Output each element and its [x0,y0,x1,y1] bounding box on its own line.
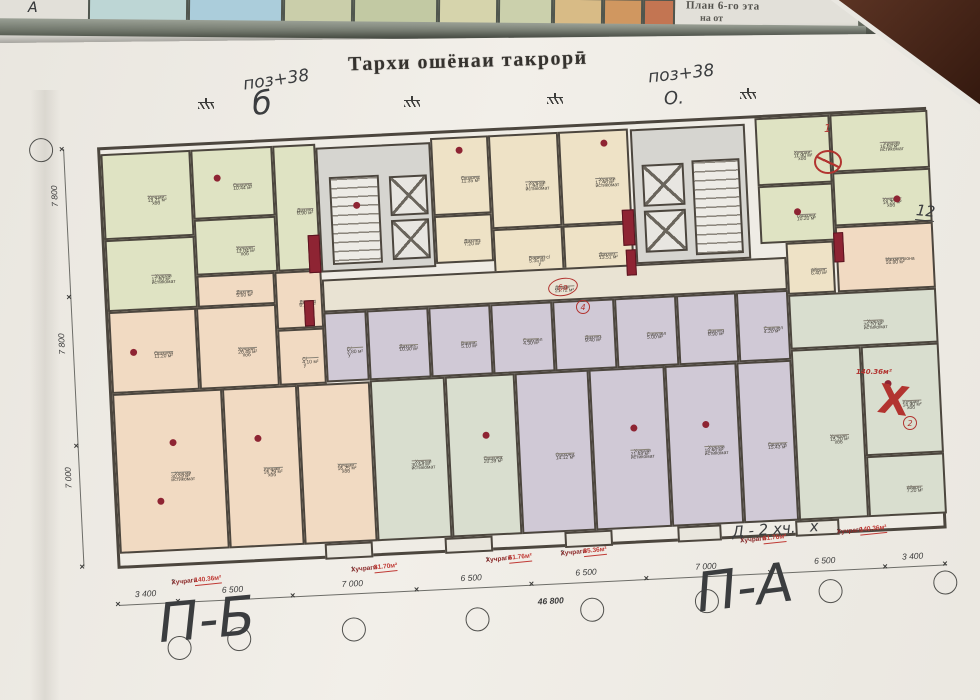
elevator-shaft [391,218,431,260]
grid-bubble [29,138,54,163]
elevator-shaft [389,174,429,216]
benchmark-icon [740,88,756,98]
room: Айвон7.20 м² [866,452,947,517]
room: Санузел4.30 м² [490,301,555,374]
room: Хучраи хоб13.21 м² [100,150,194,240]
room-area: 17.80 м² [151,274,170,283]
stair-core [630,124,751,264]
room-area: 12.04 м² [236,246,255,255]
dimension-value: 6 500 [814,555,836,566]
room-area: 10.20 м² [797,213,816,222]
balcony [445,536,494,554]
room: Дахлез8.70 м² [274,270,324,330]
room-area: 4.30 м² [523,338,540,347]
room-area: 30.64 м² [411,459,430,468]
room: Дахлез8.90 м² [676,292,739,365]
dimension-value: 7 800 [49,185,60,207]
room-area: 11.20 м² [154,351,173,360]
room: Ванна5.10 м² [428,304,493,377]
room-area: 5.35 м² [529,256,546,265]
room-area: 6.40 м² [811,268,828,277]
building-outline: Хучраи хоб13.21 м²Ошхона10.44 м²Дахлез8.… [97,107,947,569]
room: Хучраи хоб16.25 м² [297,381,378,544]
dimension-tick: × [115,599,121,609]
room-area: 10.44 м² [233,183,252,192]
red-circled-4: 4 [576,300,590,314]
room: Хучраи истикомат21.48 м² [588,366,672,531]
room: Мехмонхона16.80 м² [835,222,936,293]
room: Хучраи истикомат18.46 м² [664,362,744,526]
dimension-tick: × [66,292,72,302]
benchmark-icon [547,93,563,103]
stamp-area: 81.70м² [374,562,398,573]
room-area: 5.60 м² [236,290,253,299]
dimension-value: 3 400 [902,551,924,562]
elevator-shaft [642,163,686,207]
room-area: 16.80 м² [885,257,904,266]
dimension-tick: × [414,584,420,594]
fire-door [622,209,636,246]
room: Ошхона11.20 м² [108,308,200,394]
dimension-line-left [63,149,84,567]
room: Хучраи хоб12.04 м² [194,216,279,276]
room-area: 16.80 м² [880,141,899,150]
room-area: 4.10 м² [302,357,319,366]
room-area: 9.40 м² [585,335,602,344]
handwritten-note: П-А [693,550,797,624]
handwritten-note: б [250,83,274,123]
room-area: 17.94 м² [525,181,544,190]
room-area: 21.48 м² [630,448,649,457]
room-area: 11.35 м² [461,176,480,185]
benchmark-icon [198,98,214,108]
dimension-value: 7 000 [341,578,363,589]
handwritten-note: 12 [915,201,936,222]
room: Дахлез5.60 м² [196,272,275,308]
room-area: 8.90 м² [708,329,725,338]
grid-bubble [933,570,958,595]
room: Хучраи хоб16.29 м² [222,385,305,548]
stamp-area: 140.36м² [194,574,222,586]
stamp-area: 85.36м² [583,546,607,557]
red-note-1: 1 [824,122,831,135]
room-area: 16.25 м² [337,463,356,472]
grid-bubble [341,617,366,642]
room-area: 26.70 м² [863,319,882,328]
elevator-shaft [644,209,688,253]
red-circled-2: 2 [903,416,917,430]
room-area: 15.43 м² [768,442,787,451]
apartment-stamp: 1Хучрагӣ81.70м² [351,562,397,567]
room-area: 4.20 м² [764,326,781,335]
handwritten-note: П-Б [155,584,257,655]
room: С/у3.80 м² [323,310,369,382]
apartment-stamp: 2Хучрагӣ140.36м² [171,575,217,580]
room-area: 14.12 м² [556,452,575,461]
room-area: 20.39 м² [484,455,503,464]
room: Ошхона15.43 м² [736,360,799,523]
grid-bubble [818,579,843,604]
room: Санузел5.00 м² [614,295,679,368]
photo-of-floor-plan: План 6-го эта на от Тархи ошёнаи такрорӣ… [0,0,980,700]
dimension-tick: × [59,144,65,154]
room: Дахлез10.90 м² [366,307,431,380]
room: Санузел4.20 м² [736,290,791,362]
grid-bubble [465,607,490,632]
fire-door [626,249,637,275]
dimension-value: 6 500 [460,572,482,583]
room: Дахлез7.20 м² [434,213,494,264]
room: Ошхона10.44 м² [190,146,275,220]
room: Хучраи истикомат17.94 м² [488,132,563,229]
dimension-tick: × [529,579,535,589]
grid-bubble [580,597,605,622]
room-area: 7.20 м² [907,485,924,494]
room-area: 5.10 м² [461,341,478,350]
red-crossed-area: 140.36м² [856,368,892,376]
room: Хучраи истикомат26.70 м² [788,288,939,350]
room-area: 15.20 м² [830,434,849,443]
room: Хучраи истикомат16.80 м² [829,110,930,173]
stair-core [315,142,436,272]
stamp-area: 140.36м² [859,524,887,536]
fire-door [308,235,322,274]
room: Айвон6.40 м² [786,241,836,295]
room-area: 13.51 м² [599,252,618,261]
room: Хучраи истикомат17.80 м² [105,236,198,312]
dimension-tick: × [73,441,79,451]
back-sheet-title: План 6-го эта [686,0,760,13]
dimension-tick: × [643,573,649,583]
room-area: 7.20 м² [464,239,481,248]
fire-door [833,232,844,262]
room-area: 20.45 м² [238,347,257,356]
fire-door [304,300,315,326]
room-area: 11.90 м² [794,150,813,159]
room: С/у4.10 м² [277,328,327,386]
room-area: 16.29 м² [263,467,282,476]
room-area: 5.00 м² [647,332,664,341]
dimension-tick: × [79,562,85,572]
room: Хучраи истикомат30.64 м² [370,377,453,541]
room-area: 3.80 м² [347,347,364,356]
dimension-value: 6 500 [575,567,597,578]
room-area: 10.90 м² [399,344,418,353]
red-scribble-circle [814,150,842,174]
room: Ошхона14.12 м² [515,370,597,534]
benchmark-icon [404,96,420,106]
room-area: 17.46 м² [595,177,614,186]
room: Ошхона20.39 м² [445,373,523,537]
room-area: 8.90 м² [297,208,314,217]
back-sheet-subtitle: на от [700,13,723,24]
balcony [677,524,722,542]
dimension-value: 7 800 [56,333,67,355]
corner-letter: А [28,0,38,16]
dimension-total: 46 800 [537,595,563,606]
staircase [329,175,383,265]
room: Хучраи истикомат30.29 м² [112,389,230,554]
dimension-value: 7 000 [63,467,74,489]
dimension-tick: × [290,590,296,600]
apartment-stamp: 1Хучрагӣ61.76м² [486,552,532,557]
room: Хучраи хоб20.45 м² [196,304,280,390]
staircase [691,158,744,255]
dimension-tick: × [882,561,888,571]
room-area: 13.21 м² [147,195,166,204]
dimension-tick: × [942,558,948,568]
room-area: 18.46 м² [704,445,723,454]
room-area: 30.29 м² [171,471,190,480]
handwritten-note: О. [663,87,684,109]
stamp-area: 61.76м² [508,552,532,563]
dimension-value: 3 400 [135,588,157,599]
balcony [325,541,374,559]
